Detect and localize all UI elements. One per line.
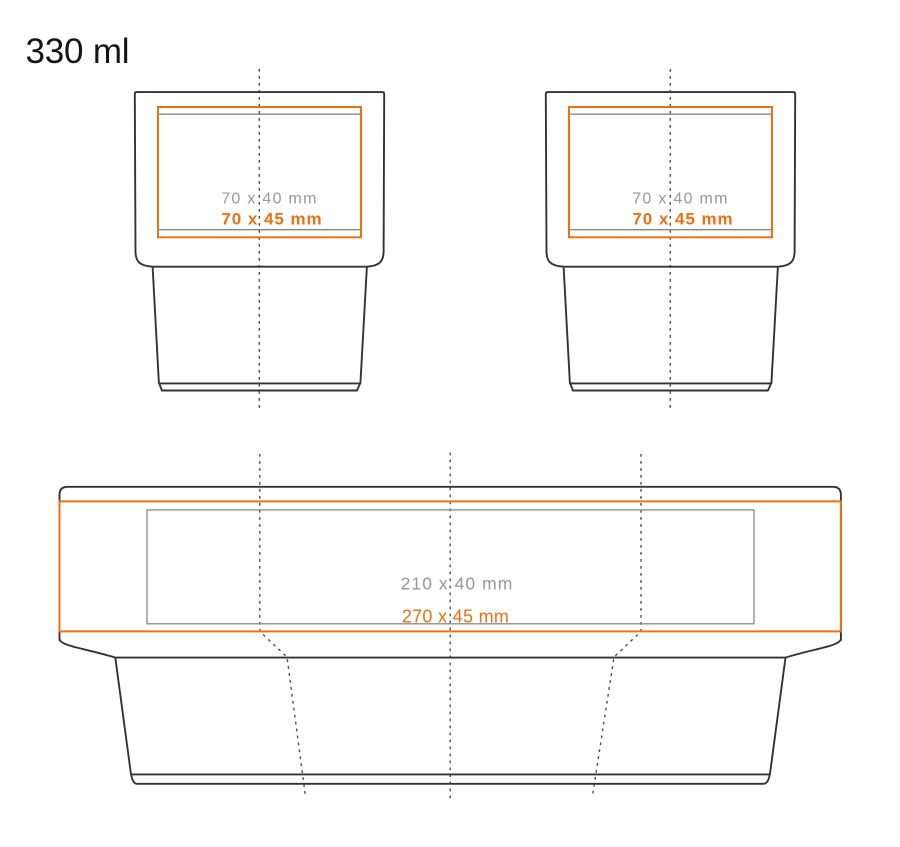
svg-text:210 x 40 mm: 210 x 40 mm: [401, 573, 514, 593]
svg-text:70 x 40 mm: 70 x 40 mm: [632, 190, 729, 207]
svg-text:70 x 45 mm: 70 x 45 mm: [632, 209, 733, 228]
svg-text:70 x 40 mm: 70 x 40 mm: [221, 190, 318, 207]
svg-text:270 x 45 mm: 270 x 45 mm: [402, 607, 509, 627]
svg-text:330 ml: 330 ml: [26, 32, 130, 71]
svg-text:70 x 45 mm: 70 x 45 mm: [221, 209, 322, 228]
